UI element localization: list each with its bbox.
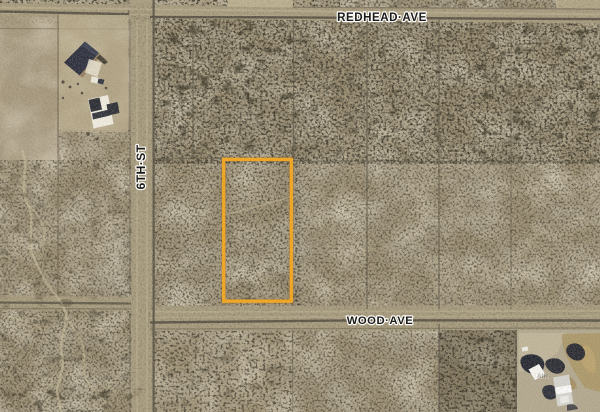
svg-text:6TH·ST: 6TH·ST xyxy=(134,144,148,189)
svg-text:WOOD·AVE: WOOD·AVE xyxy=(347,315,414,327)
svg-text:REDHEAD·AVE: REDHEAD·AVE xyxy=(337,11,427,24)
